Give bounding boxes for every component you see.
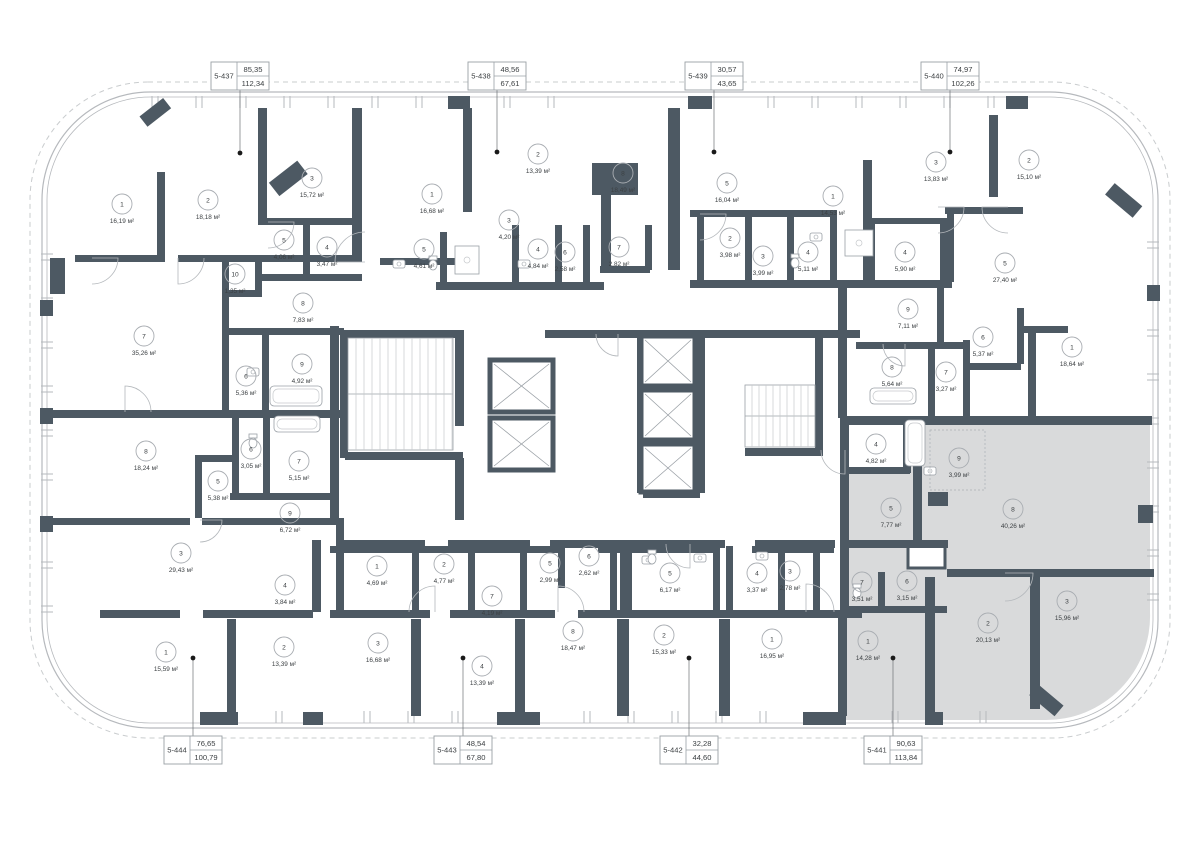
leader-dot — [687, 656, 692, 661]
wall — [726, 546, 733, 612]
room-area: 4,19 м² — [482, 610, 503, 617]
room-area: 5,37 м² — [973, 351, 994, 358]
wall — [963, 363, 1021, 370]
callout-area-top: 90,63 — [896, 739, 915, 748]
callout-area-bottom: 43,65 — [717, 79, 736, 88]
room-number: 4 — [325, 244, 329, 251]
elevator-shaft — [490, 418, 553, 470]
callout-apartment-id: 5-437 — [214, 72, 233, 81]
room-area: 3,37 м² — [747, 587, 768, 594]
wall — [520, 552, 527, 612]
callout-area-top: 48,54 — [466, 739, 485, 748]
wall — [463, 108, 472, 212]
room-area: 27,40 м² — [993, 277, 1017, 284]
wall — [1017, 308, 1024, 364]
wall — [610, 546, 617, 612]
wall — [450, 610, 555, 618]
room-number: 1 — [375, 563, 379, 570]
wall — [697, 333, 705, 493]
wall — [352, 108, 362, 262]
wall — [1006, 96, 1028, 109]
room-area: 40,26 м² — [1001, 523, 1025, 530]
room-area: 4,20 м² — [499, 234, 520, 241]
room-number: 3 — [179, 550, 183, 557]
room-number: 2 — [536, 151, 540, 158]
wall — [412, 546, 419, 612]
wall — [989, 115, 998, 197]
wall — [928, 492, 948, 506]
wall — [336, 524, 344, 612]
room-area: 15,10 м² — [1017, 174, 1041, 181]
callout-area-top: 76,65 — [196, 739, 215, 748]
room-area: 3,98 м² — [720, 252, 741, 259]
room-area: 16,68 м² — [420, 208, 444, 215]
sink-icon — [393, 260, 405, 268]
room-number: 5 — [282, 237, 286, 244]
room-number: 1 — [120, 201, 124, 208]
room-number: 5 — [422, 246, 426, 253]
wall — [555, 225, 562, 282]
callout-area-bottom: 44,60 — [692, 753, 711, 762]
wall — [925, 577, 935, 717]
wall — [545, 330, 645, 338]
stair-left — [348, 338, 453, 450]
wall — [157, 172, 165, 262]
room-area: 5,36 м² — [236, 390, 257, 397]
bathtub-icon — [270, 386, 322, 406]
room-area: 16,68 м² — [366, 657, 390, 664]
room-area: 2,82 м² — [609, 261, 630, 268]
room-number: 4 — [874, 441, 878, 448]
shower-icon — [845, 230, 873, 256]
elevator-shaft — [641, 390, 695, 440]
room-area: 3,15 м² — [897, 595, 918, 602]
callout-area-top: 32,28 — [692, 739, 711, 748]
room-area: 7,83 м² — [293, 317, 314, 324]
room-number: 6 — [249, 446, 253, 453]
bathtub-icon — [905, 420, 925, 466]
wall — [947, 569, 1154, 577]
leader-dot — [238, 151, 243, 156]
callout-apartment-id: 5-441 — [867, 746, 886, 755]
room-number: 1 — [430, 191, 434, 198]
callout-area-bottom: 112,34 — [242, 79, 265, 88]
callout-apartment-id: 5-444 — [167, 746, 186, 755]
room-number: 7 — [297, 458, 301, 465]
wall — [345, 452, 463, 460]
room-number: 2 — [206, 197, 210, 204]
room-number: 2 — [282, 644, 286, 651]
room-area: 16,95 м² — [760, 653, 784, 660]
room-number: 5 — [668, 570, 672, 577]
wall — [868, 218, 942, 224]
wall — [645, 225, 652, 270]
room-area: 18,64 м² — [1060, 361, 1084, 368]
shower-icon — [455, 246, 479, 274]
wall — [1138, 505, 1153, 523]
room-area: 7,77 м² — [881, 522, 902, 529]
room-number: 7 — [490, 593, 494, 600]
room-area: 2,99 м² — [540, 577, 561, 584]
wall — [620, 546, 632, 612]
room-area: 4,61 м² — [414, 263, 435, 270]
room-number: 8 — [571, 628, 575, 635]
wall — [46, 518, 190, 525]
room-number: 3 — [376, 640, 380, 647]
wall — [455, 330, 464, 426]
callout-area-bottom: 113,84 — [895, 753, 918, 762]
leader-dot — [712, 150, 717, 155]
wall — [348, 330, 458, 338]
room-area: 18,47 м² — [561, 645, 585, 652]
toilet-icon — [648, 550, 656, 564]
room-area: 13,39 м² — [526, 168, 550, 175]
room-number: 3 — [507, 217, 511, 224]
room-area: 15,59 м² — [154, 666, 178, 673]
room-area: 13,39 м² — [272, 661, 296, 668]
room-area: 5,15 м² — [289, 475, 310, 482]
wall — [745, 448, 823, 456]
room-area: 13,39 м² — [470, 680, 494, 687]
room-area: 2,58 м² — [555, 266, 576, 273]
room-number: 3 — [788, 568, 792, 575]
wall — [303, 222, 310, 278]
room-number: 3 — [310, 175, 314, 182]
room-number: 4 — [536, 246, 540, 253]
leader-dot — [495, 150, 500, 155]
room-number: 10 — [231, 271, 239, 278]
wall — [448, 540, 530, 548]
room-area: 5,38 м² — [208, 495, 229, 502]
wall — [745, 210, 752, 282]
room-number: 1 — [164, 649, 168, 656]
elevator-shaft — [490, 360, 553, 412]
sink-icon — [810, 233, 822, 241]
wall — [40, 516, 53, 532]
room-area: 5,64 м² — [882, 381, 903, 388]
wall — [40, 408, 53, 424]
wall — [719, 619, 730, 716]
room-area: 18,18 м² — [196, 214, 220, 221]
room-area: 3,99 м² — [949, 472, 970, 479]
wall — [195, 455, 202, 518]
room-number: 2 — [662, 632, 666, 639]
room-number: 5 — [889, 505, 893, 512]
room-area: 3,99 м² — [753, 270, 774, 277]
wall — [668, 108, 680, 270]
callout-area-bottom: 67,80 — [466, 753, 485, 762]
wall — [230, 493, 335, 500]
wall — [690, 280, 952, 288]
room-area: 18,49 м² — [611, 187, 635, 194]
wall — [200, 712, 238, 725]
wall — [100, 610, 180, 618]
callout-apartment-id: 5-442 — [663, 746, 682, 755]
room-number: 6 — [981, 334, 985, 341]
wall — [878, 572, 885, 608]
floor-plan-page: 116,19 м²218,18 м²315,72 м²54,06 м²43,47… — [0, 0, 1200, 849]
room-area: 29,43 м² — [169, 567, 193, 574]
callout-area-top: 74,97 — [953, 65, 972, 74]
room-number: 4 — [480, 663, 484, 670]
room-number: 5 — [1003, 260, 1007, 267]
room-number: 9 — [906, 306, 910, 313]
callout-area-top: 85,35 — [243, 65, 262, 74]
room-area: 16,19 м² — [110, 218, 134, 225]
room-number: 5 — [725, 180, 729, 187]
room-area: 2,78 м² — [780, 585, 801, 592]
room-number: 5 — [548, 560, 552, 567]
room-area: 5,11 м² — [798, 266, 818, 273]
wall — [840, 416, 1152, 425]
room-number: 1 — [831, 193, 835, 200]
callout-apartment-id: 5-443 — [437, 746, 456, 755]
elevator-shaft — [641, 336, 695, 386]
wall — [227, 619, 236, 717]
leader-dot — [191, 656, 196, 661]
room-number: 6 — [905, 578, 909, 585]
wall — [947, 210, 954, 282]
wall — [803, 712, 846, 725]
wall — [688, 96, 712, 109]
wall — [202, 518, 344, 525]
wall — [222, 328, 344, 335]
room-area: 15,33 м² — [652, 649, 676, 656]
wall — [195, 455, 239, 462]
sink-icon — [694, 554, 706, 562]
wall — [583, 225, 590, 282]
room-number: 7 — [142, 333, 146, 340]
room-number: 7 — [944, 369, 948, 376]
wall — [697, 210, 704, 282]
wall — [840, 467, 910, 474]
room-area: 18,24 м² — [134, 465, 158, 472]
wall — [468, 546, 475, 612]
room-area: 4,92 м² — [292, 378, 313, 385]
room-number: 8 — [144, 448, 148, 455]
room-area: 4,84 м² — [528, 263, 549, 270]
wall — [303, 712, 323, 725]
callout-area-bottom: 67,61 — [500, 79, 519, 88]
callout-apartment-id: 5-438 — [471, 72, 490, 81]
room-number: 6 — [563, 249, 567, 256]
room-number: 7 — [617, 244, 621, 251]
wall — [340, 330, 348, 458]
room-area: 15,72 м² — [300, 192, 324, 199]
wall — [455, 458, 464, 520]
room-number: 6 — [587, 553, 591, 560]
room-number: 4 — [283, 582, 287, 589]
callout-apartment-id: 5-440 — [924, 72, 943, 81]
wall — [258, 274, 362, 281]
room-area: 5,90 м² — [895, 266, 916, 273]
room-area: 4,82 м² — [866, 458, 887, 465]
wall — [50, 258, 65, 294]
room-area: 3,51 м² — [852, 596, 873, 603]
leader-dot — [948, 150, 953, 155]
wall — [856, 342, 964, 349]
wall — [963, 340, 970, 422]
bathtub-icon — [274, 416, 320, 432]
room-number: 8 — [1011, 506, 1015, 513]
room-number: 4 — [755, 570, 759, 577]
room-area: 4,06 м² — [274, 254, 295, 261]
room-area: 15,96 м² — [1055, 615, 1079, 622]
room-area: 1,35 м² — [225, 288, 246, 295]
wall — [713, 546, 720, 612]
wall — [411, 619, 421, 716]
room-number: 8 — [890, 364, 894, 371]
callout-area-bottom: 102,26 — [951, 79, 974, 88]
wall — [262, 332, 269, 412]
room-area: 35,26 м² — [132, 350, 156, 357]
wall — [787, 210, 794, 282]
room-area: 3,05 м² — [241, 463, 262, 470]
wall — [848, 540, 948, 548]
wall — [755, 540, 835, 548]
wall — [550, 540, 725, 548]
room-number: 9 — [288, 510, 292, 517]
wall — [1023, 326, 1068, 333]
room-number: 9 — [957, 455, 961, 462]
shaft-cell — [908, 546, 945, 568]
wall — [940, 218, 947, 282]
wall — [497, 712, 540, 725]
wall — [815, 332, 823, 456]
room-number: 5 — [216, 478, 220, 485]
wall — [263, 413, 270, 497]
wall — [838, 612, 847, 716]
room-number: 7 — [860, 579, 864, 586]
callout-area-top: 30,57 — [717, 65, 736, 74]
room-area: 6,17 м² — [660, 587, 681, 594]
room-area: 4,69 м² — [367, 580, 388, 587]
wall — [945, 207, 1023, 214]
wall — [436, 282, 604, 290]
room-number: 9 — [300, 361, 304, 368]
room-area: 13,83 м² — [924, 176, 948, 183]
room-area: 14,53 м² — [821, 210, 845, 217]
room-area: 3,47 м² — [317, 261, 338, 268]
room-area: 3,27 м² — [936, 386, 957, 393]
wall — [937, 288, 944, 342]
wall — [1147, 285, 1160, 301]
room-number: 3 — [934, 159, 938, 166]
room-number: 1 — [866, 638, 870, 645]
room-area: 3,84 м² — [275, 599, 296, 606]
room-area: 7,11 м² — [898, 323, 918, 330]
room-number: 2 — [1027, 157, 1031, 164]
room-area: 6,72 м² — [280, 527, 301, 534]
room-number: 2 — [442, 561, 446, 568]
bathtub-icon — [870, 388, 916, 404]
stair-right — [745, 385, 815, 447]
room-number: 2 — [986, 620, 990, 627]
room-number: 4 — [806, 249, 810, 256]
room-area: 14,28 м² — [856, 655, 880, 662]
sink-icon — [756, 552, 768, 560]
callout-area-bottom: 100,79 — [194, 753, 217, 762]
room-number: 3 — [761, 253, 765, 260]
wall — [515, 619, 525, 716]
leader-dot — [461, 656, 466, 661]
wall — [925, 712, 943, 725]
wall — [617, 619, 629, 716]
room-number: 1 — [1070, 344, 1074, 351]
wall — [312, 540, 321, 612]
room-area: 20,13 м² — [976, 637, 1000, 644]
wall — [440, 232, 447, 282]
wall — [838, 283, 847, 418]
wall — [203, 610, 313, 618]
wall — [690, 210, 832, 217]
callout-area-top: 48,56 — [500, 65, 519, 74]
wall — [75, 255, 165, 262]
elevator-shaft — [641, 444, 695, 492]
room-number: 3 — [1065, 598, 1069, 605]
room-area: 2,62 м² — [579, 570, 600, 577]
room-area: 4,77 м² — [434, 578, 455, 585]
room-number: 2 — [728, 235, 732, 242]
room-number: 8 — [301, 300, 305, 307]
room-number: 8 — [621, 170, 625, 177]
wall — [448, 96, 470, 109]
wall — [928, 342, 935, 422]
callout-apartment-id: 5-439 — [688, 72, 707, 81]
wall — [1028, 326, 1036, 418]
wall — [830, 210, 837, 282]
floor-plan-svg: 116,19 м²218,18 м²315,72 м²54,06 м²43,47… — [0, 0, 1200, 849]
wall — [601, 195, 611, 270]
room-number: 6 — [244, 373, 248, 380]
room-number: 4 — [903, 249, 907, 256]
wall — [258, 108, 267, 222]
wall — [40, 300, 53, 316]
room-number: 1 — [770, 636, 774, 643]
wall — [840, 425, 849, 615]
room-area: 16,04 м² — [715, 197, 739, 204]
wall — [340, 540, 425, 548]
leader-dot — [891, 656, 896, 661]
wall — [700, 330, 820, 338]
wall — [813, 546, 820, 612]
